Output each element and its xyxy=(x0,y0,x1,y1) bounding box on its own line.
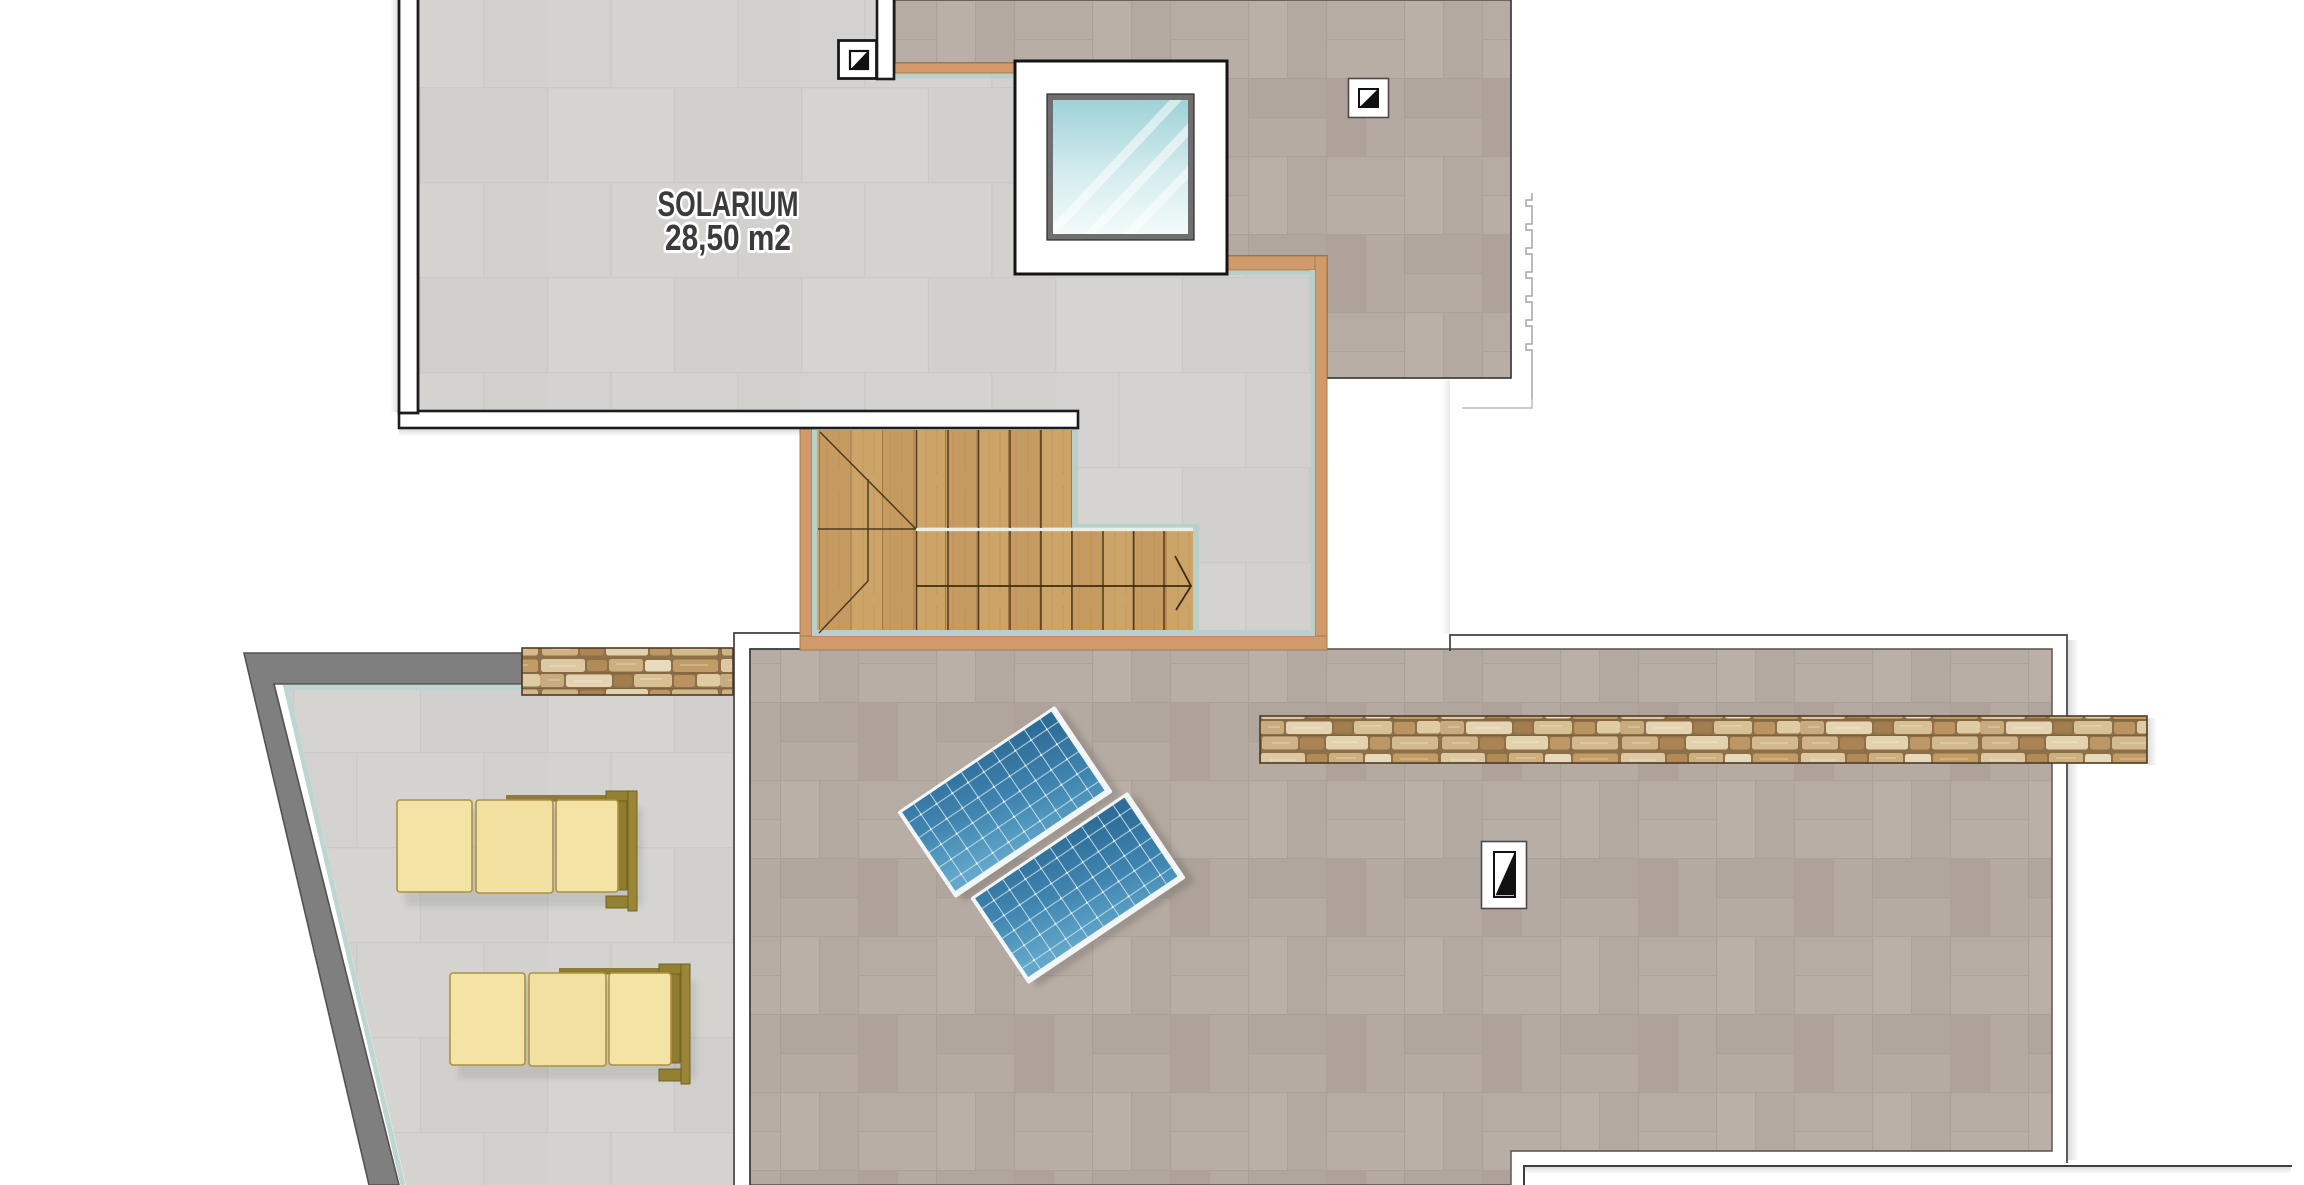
svg-text:28,50 m2: 28,50 m2 xyxy=(665,217,791,258)
